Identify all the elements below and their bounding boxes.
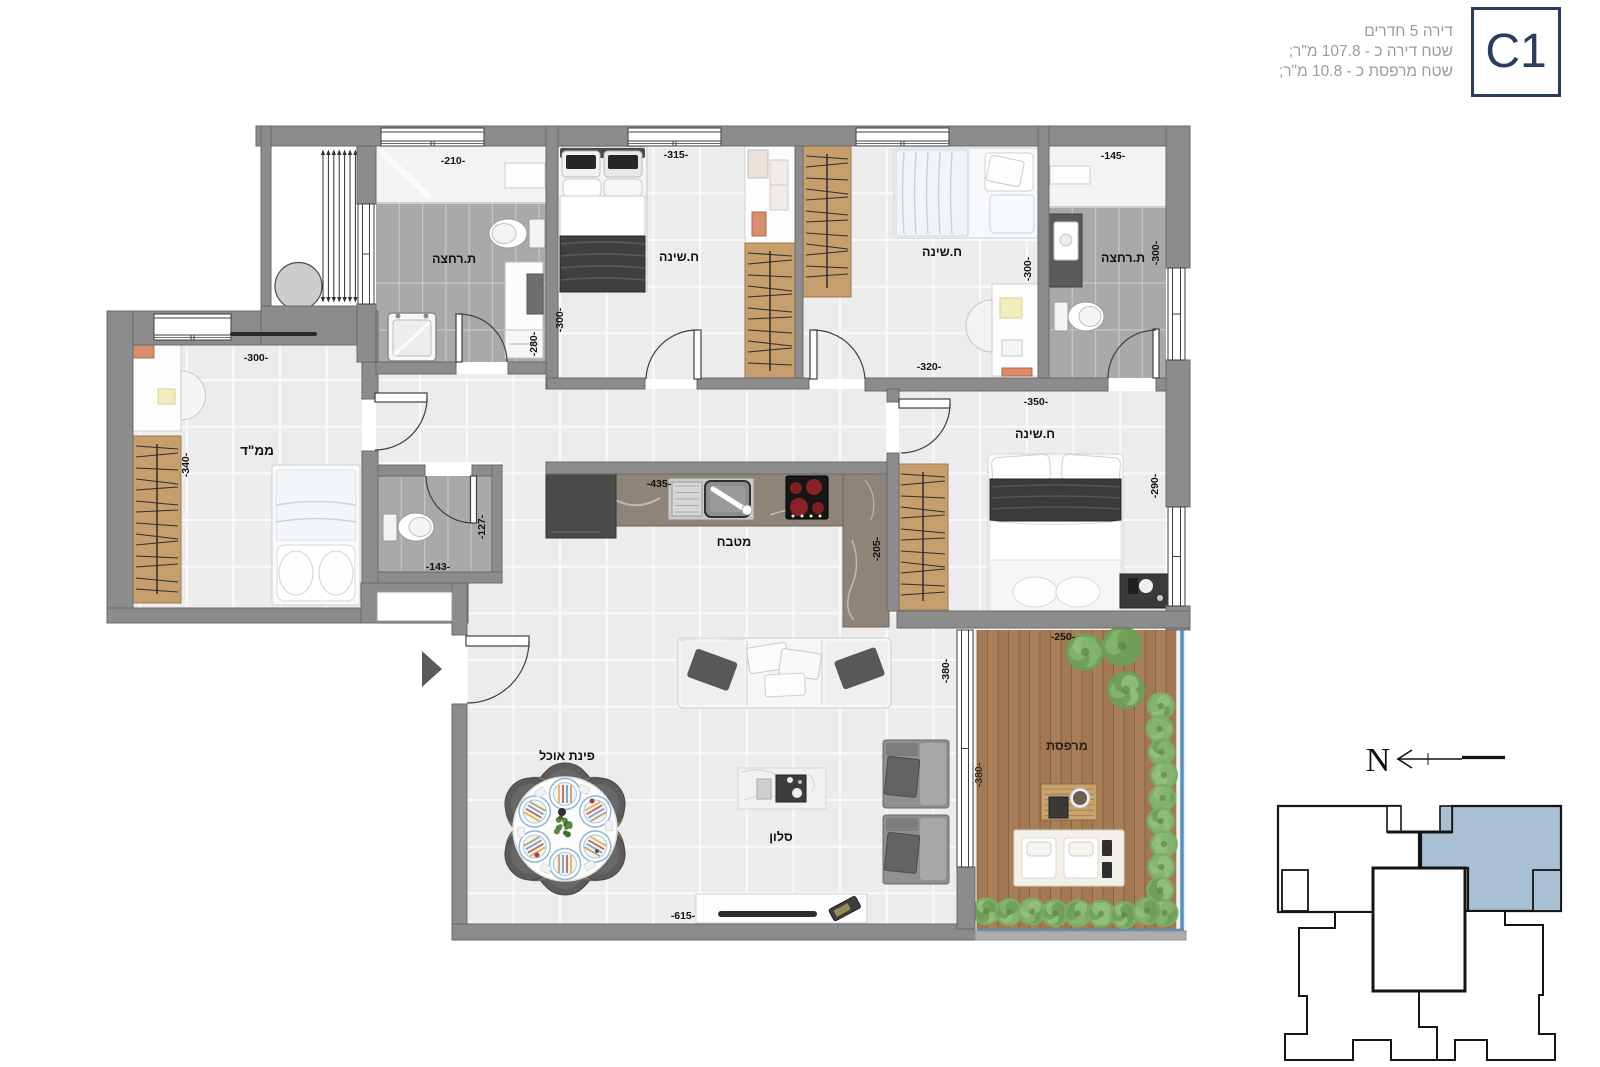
svg-text:-435-: -435-	[647, 478, 672, 490]
svg-text:-205-: -205-	[871, 536, 883, 561]
svg-text:-300-: -300-	[244, 352, 269, 364]
svg-text:-340-: -340-	[180, 452, 192, 477]
svg-text:-250-: -250-	[1051, 631, 1076, 643]
svg-text:ת.רחצה: ת.רחצה	[432, 252, 476, 266]
svg-text:סלון: סלון	[769, 830, 793, 844]
svg-text:-380-: -380-	[973, 762, 985, 787]
svg-text:-143-: -143-	[426, 561, 451, 573]
svg-text:-127-: -127-	[476, 514, 488, 539]
svg-text:N: N	[1366, 742, 1391, 779]
svg-text:-145-: -145-	[1101, 150, 1126, 162]
svg-text:-320-: -320-	[917, 361, 942, 373]
svg-text:מטבח: מטבח	[717, 535, 751, 549]
svg-text:ח.שינה: ח.שינה	[922, 245, 962, 259]
svg-text:-350-: -350-	[1024, 396, 1049, 408]
svg-text:-615-: -615-	[671, 910, 696, 922]
svg-text:-315-: -315-	[664, 149, 689, 161]
svg-text:ח.שינה: ח.שינה	[1015, 427, 1055, 441]
svg-text:-300-: -300-	[1022, 256, 1034, 281]
svg-text:-300-: -300-	[554, 307, 566, 332]
svg-text:-280-: -280-	[528, 331, 540, 356]
svg-text:-210-: -210-	[441, 155, 466, 167]
svg-text:פינת אוכל: פינת אוכל	[539, 749, 595, 763]
svg-text:-290-: -290-	[1149, 473, 1161, 498]
svg-text:-300-: -300-	[1150, 240, 1162, 265]
svg-text:ח.שינה: ח.שינה	[659, 250, 699, 264]
svg-text:ת.רחצה: ת.רחצה	[1101, 251, 1145, 265]
svg-text:מרפסת: מרפסת	[1046, 739, 1088, 753]
svg-text:ממ"ד: ממ"ד	[240, 443, 274, 458]
svg-text:-380-: -380-	[940, 658, 952, 683]
